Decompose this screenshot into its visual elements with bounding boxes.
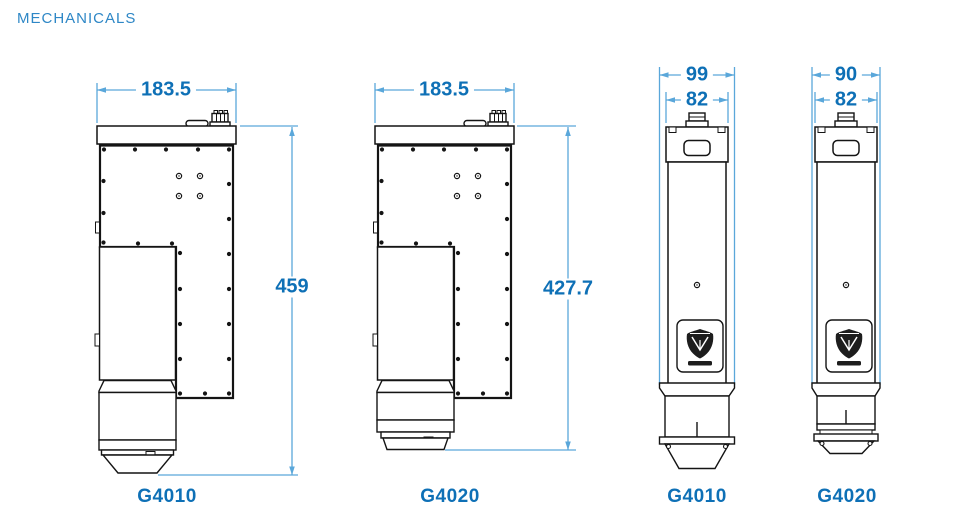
dim-value-g4010-front-body: 82	[681, 90, 713, 111]
edge-notch	[96, 222, 100, 233]
galvo-body	[100, 247, 176, 380]
top-cap	[97, 126, 236, 144]
brand-wordmark	[688, 361, 712, 366]
dim-value-g4010-side-width: 183.5	[136, 80, 196, 101]
top-connector	[210, 111, 230, 127]
g4020-side-drawing	[373, 111, 514, 450]
corner-tab	[718, 127, 725, 133]
brand-logo-plate	[826, 320, 872, 372]
corner-tab	[867, 127, 874, 133]
edge-notch	[374, 222, 378, 233]
corner-tab	[818, 127, 825, 133]
dim-value-g4010-side-height: 459	[270, 277, 313, 298]
model-label-g4010-front: G4010	[667, 486, 727, 508]
g4010-front-drawing	[660, 113, 735, 469]
g4010-side-drawing	[95, 111, 236, 474]
g4020-front-drawing	[812, 113, 880, 454]
model-label-g4020-front: G4020	[817, 486, 877, 508]
lens-assembly	[812, 383, 880, 454]
dim-value-g4010-front-outer: 99	[681, 65, 713, 86]
top-connector	[835, 113, 857, 127]
corner-tab	[669, 127, 676, 133]
dim-value-g4020-side-width: 183.5	[414, 80, 474, 101]
top-connector	[686, 113, 708, 127]
lens-assembly	[660, 383, 735, 469]
front-window	[833, 141, 859, 156]
dim-value-g4020-front-outer: 90	[830, 65, 862, 86]
model-label-g4010-side: G4010	[137, 486, 197, 508]
mechanicals-spec-page: MECHANICALS	[0, 0, 963, 521]
galvo-body	[378, 247, 454, 380]
model-label-g4020-side: G4020	[420, 486, 480, 508]
top-cap	[375, 126, 514, 144]
front-window	[684, 141, 710, 156]
lens-assembly	[99, 381, 176, 474]
top-connector	[488, 111, 508, 127]
dim-value-g4020-front-body: 82	[830, 90, 862, 111]
brand-logo-plate	[677, 320, 723, 372]
edge-notch	[95, 334, 100, 346]
edge-notch	[373, 334, 378, 346]
brand-wordmark	[837, 361, 861, 366]
lens-assembly	[377, 381, 454, 450]
dim-value-g4020-side-height: 427.7	[538, 279, 598, 300]
